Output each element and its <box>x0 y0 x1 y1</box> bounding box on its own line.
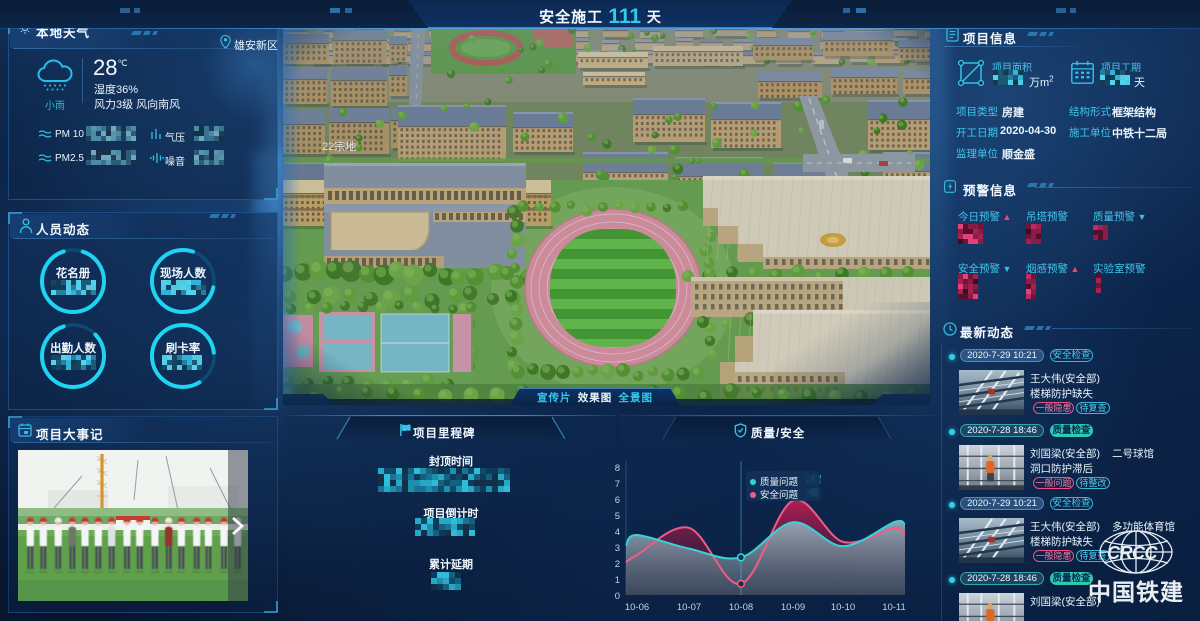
svg-text:10-11: 10-11 <box>882 602 906 613</box>
svg-text:5: 5 <box>615 511 620 522</box>
svg-text:10-10: 10-10 <box>831 602 855 613</box>
svg-text:10-07: 10-07 <box>677 602 701 613</box>
svg-text:2: 2 <box>615 559 620 570</box>
svg-text:10-08: 10-08 <box>729 602 753 613</box>
svg-text:CRCC: CRCC <box>1107 543 1158 563</box>
svg-text:6: 6 <box>615 495 620 506</box>
svg-text:中国铁建: 中国铁建 <box>1088 579 1184 605</box>
svg-text:1: 1 <box>615 575 620 586</box>
svg-text:8: 8 <box>615 463 620 474</box>
svg-text:4: 4 <box>615 527 620 538</box>
svg-text:10-09: 10-09 <box>781 602 805 613</box>
svg-text:3: 3 <box>615 543 620 554</box>
svg-text:7: 7 <box>615 479 620 490</box>
svg-text:0: 0 <box>615 591 620 602</box>
svg-text:10-06: 10-06 <box>625 602 649 613</box>
